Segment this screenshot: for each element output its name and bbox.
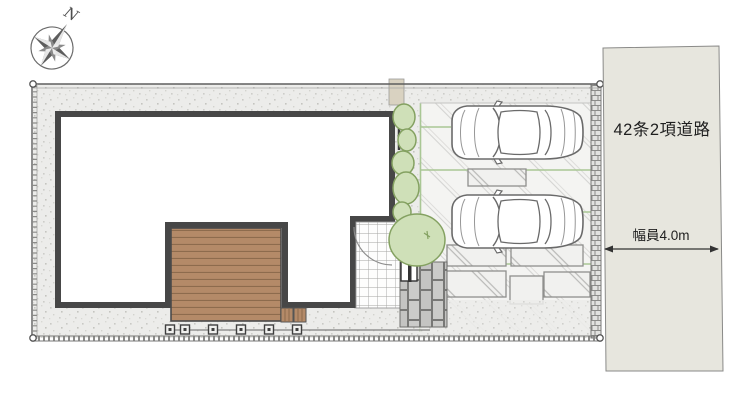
car-1-top-view: [452, 101, 583, 164]
block-wall: [591, 84, 601, 338]
site-plan-canvas: N 42条2項道路 幅員4.0m: [0, 0, 740, 401]
road-width-label: 幅員4.0m: [602, 229, 720, 244]
road-name-label: 42条2項道路: [604, 121, 720, 139]
site-plan-drawing: [0, 0, 740, 401]
road-area: [603, 46, 723, 371]
gate-post: [389, 79, 404, 105]
wood-deck: [171, 228, 281, 321]
car-2-top-view: [452, 190, 583, 253]
deck-steps: [281, 308, 306, 322]
